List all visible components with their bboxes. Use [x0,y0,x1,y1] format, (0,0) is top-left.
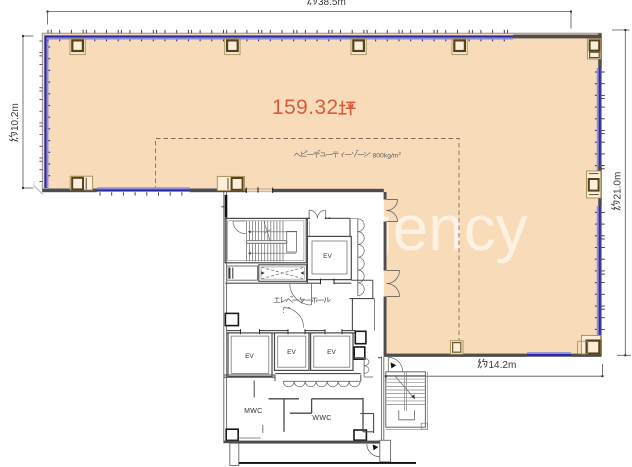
svg-text:EV: EV [327,349,336,356]
svg-text:EV: EV [323,253,332,260]
svg-text:MWC: MWC [244,408,262,415]
svg-text:2: 2 [399,151,402,156]
svg-text:21.0m: 21.0m [612,172,623,200]
svg-text:EV: EV [245,353,254,360]
svg-text:38.5m: 38.5m [318,0,346,8]
svg-text:EV: EV [287,349,296,356]
svg-text:gency: gency [357,192,528,264]
svg-text:14.2m: 14.2m [489,360,517,371]
svg-text:159.32: 159.32 [272,96,339,119]
svg-text:WWC: WWC [312,415,331,422]
svg-text:10.2m: 10.2m [10,103,21,131]
svg-text:800kg/m: 800kg/m [373,153,399,160]
